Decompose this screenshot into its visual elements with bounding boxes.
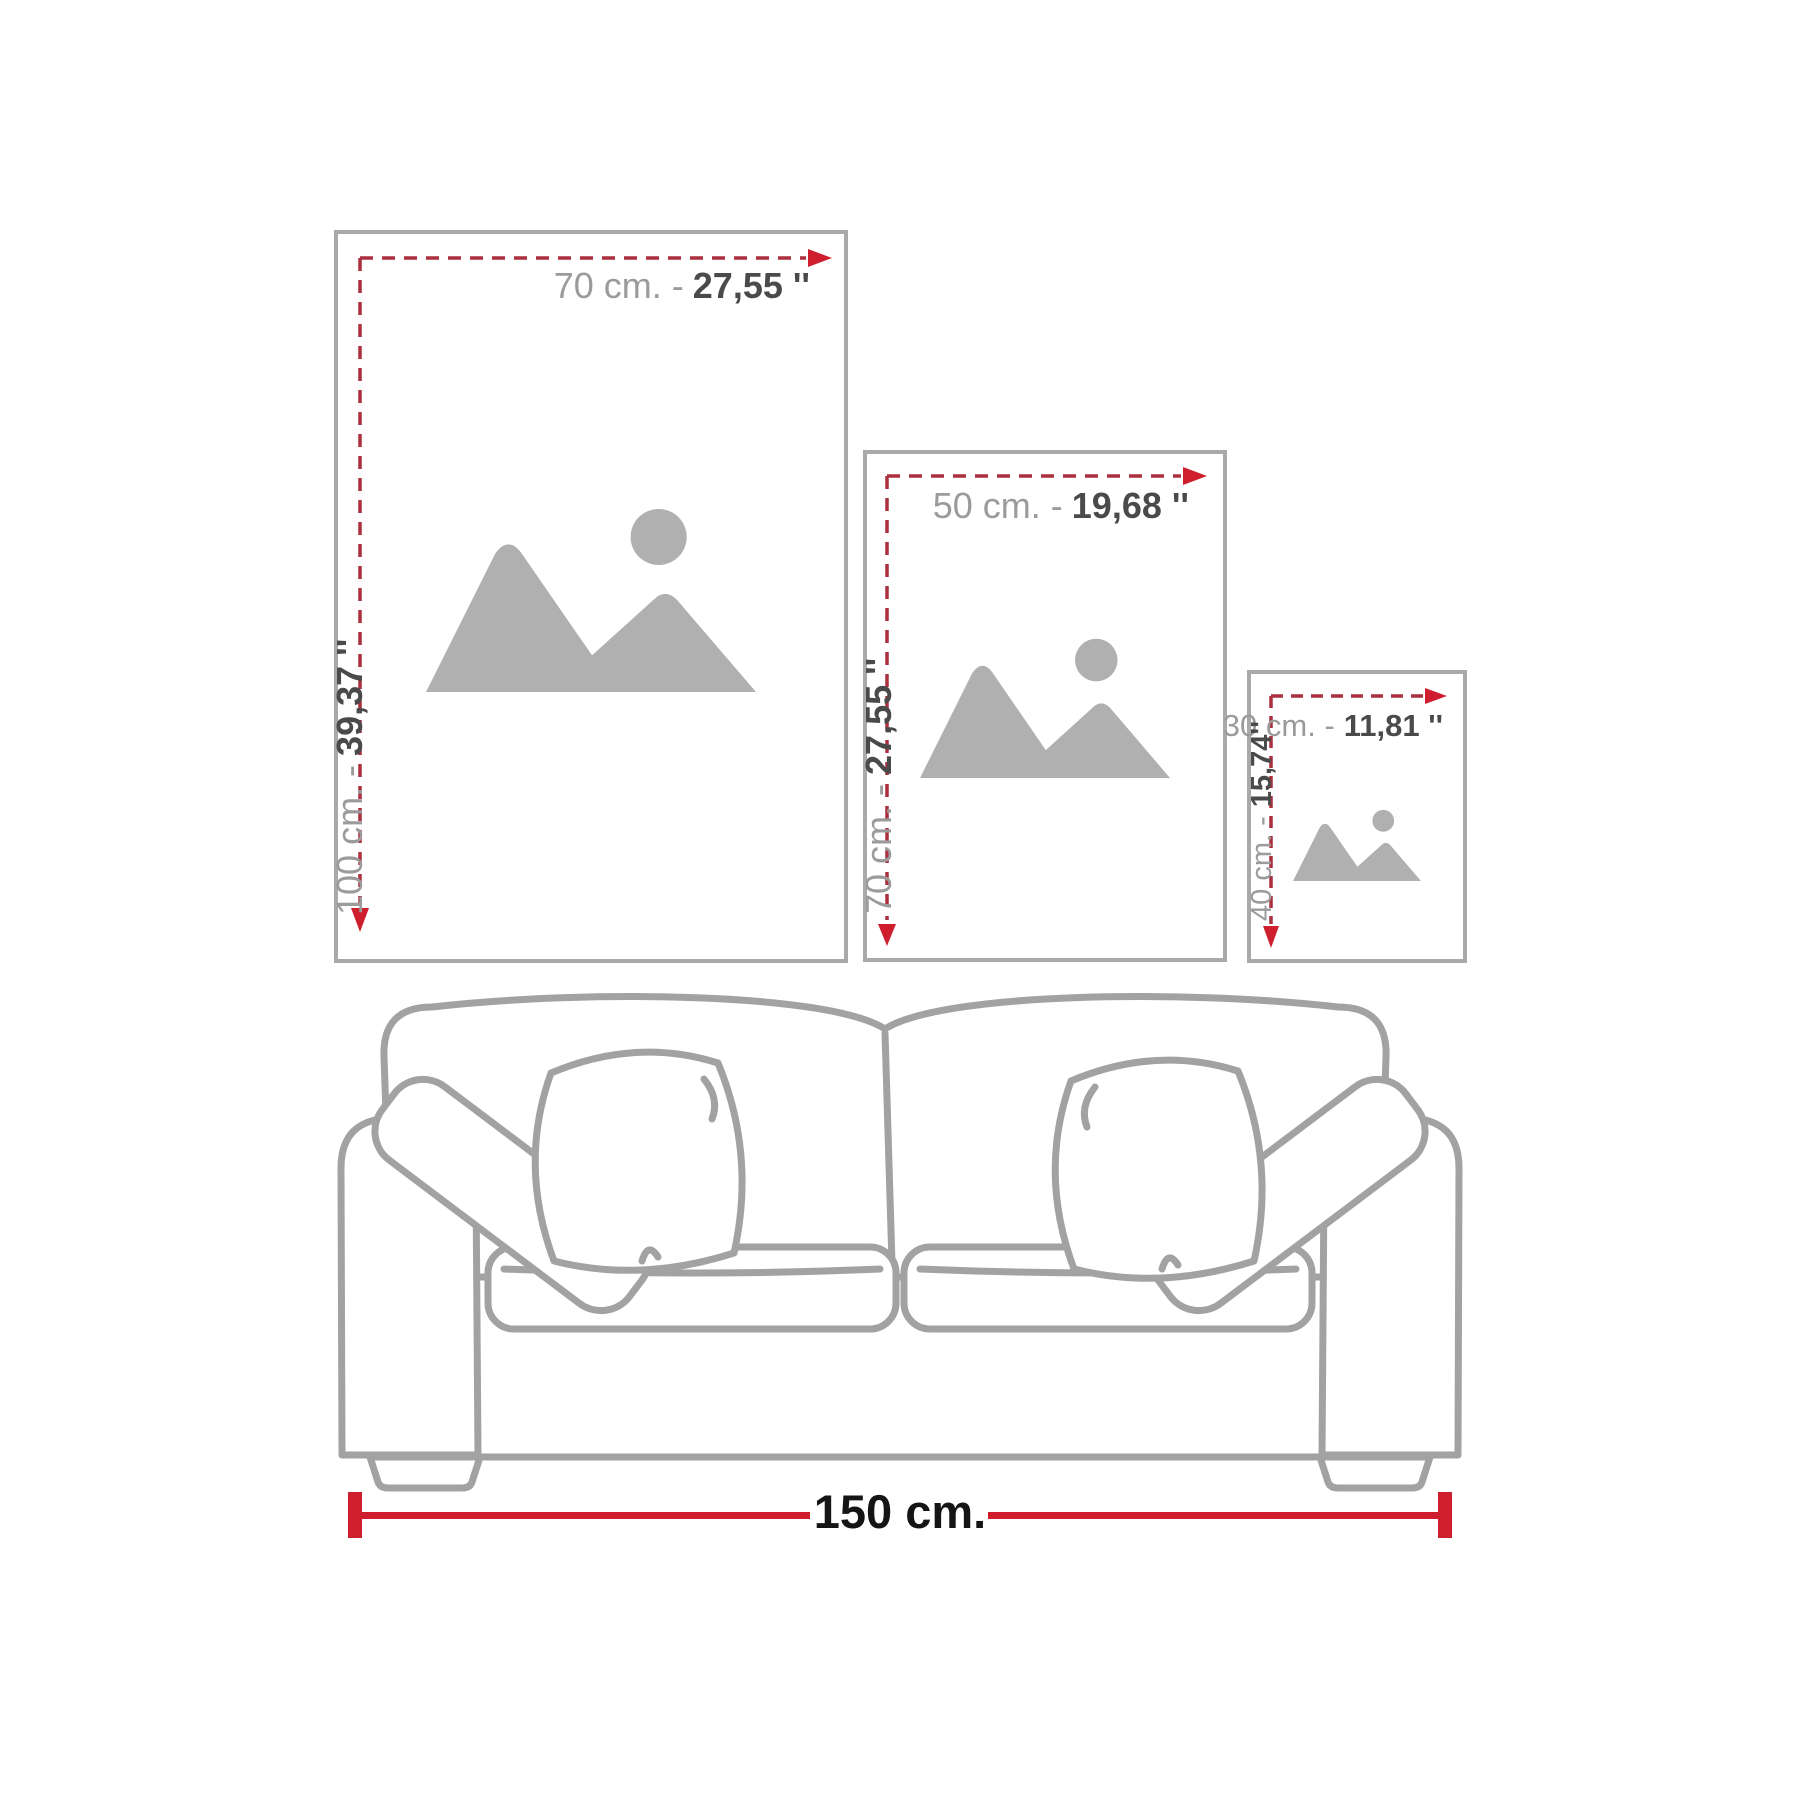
- sofa-illustration: [320, 985, 1480, 1505]
- size-guide-diagram: 70 cm. - 27,55 '' 100 cm. - 39,37 '' 50 …: [0, 0, 1800, 1800]
- large-frame-width-label: 70 cm. - 27,55 '': [554, 268, 810, 304]
- sofa-foot-right: [1320, 1457, 1430, 1488]
- width-arrow-icon: [1425, 688, 1447, 704]
- measure-line-left: [362, 1512, 810, 1519]
- frame-large-70x100: 70 cm. - 27,55 '' 100 cm. - 39,37 '': [334, 230, 848, 963]
- image-placeholder-icon: [426, 504, 756, 692]
- measure-line-right: [988, 1512, 1438, 1519]
- measure-end-cap-left: [348, 1492, 362, 1538]
- height-arrow-icon: [878, 924, 896, 946]
- width-arrow-icon: [1183, 467, 1207, 485]
- frame-medium-50x70: 50 cm. - 19,68 '' 70 cm. - 27,55 '': [863, 450, 1227, 962]
- frame-small-30x40: 30 cm. - 11,81 '' 40 cm. - 15,74'': [1247, 670, 1467, 963]
- width-arrow-icon: [808, 249, 832, 267]
- medium-frame-height-label: 70 cm. - 27,55 '': [861, 658, 897, 914]
- large-frame-height-label: 100 cm. - 39,37 '': [332, 639, 368, 915]
- image-placeholder-icon: [1293, 808, 1421, 881]
- small-frame-height-label: 40 cm. - 15,74'': [1248, 721, 1277, 921]
- medium-frame-width-label: 50 cm. - 19,68 '': [933, 488, 1189, 524]
- image-placeholder-icon: [920, 635, 1170, 778]
- sofa-width-label: 150 cm.: [814, 1488, 986, 1535]
- sofa-foot-left: [370, 1457, 480, 1488]
- measure-end-cap-right: [1438, 1492, 1452, 1538]
- sofa-throw-pillow-right: [1055, 1060, 1262, 1278]
- height-arrow-icon: [1263, 926, 1279, 948]
